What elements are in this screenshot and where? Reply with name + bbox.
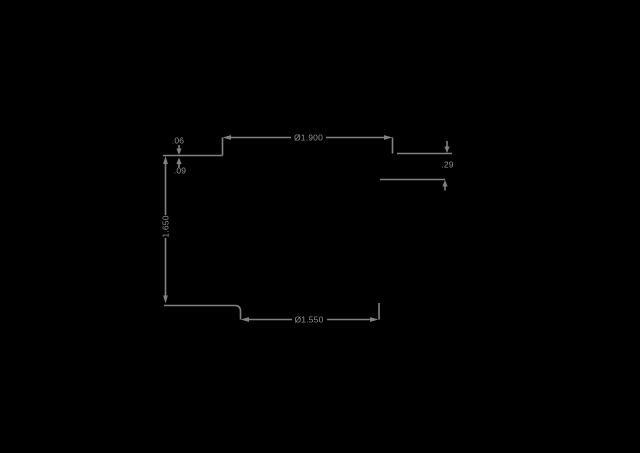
arrowhead-icon xyxy=(163,296,168,304)
dimension-left-height[interactable]: 1.650 xyxy=(161,156,171,304)
dimension-label[interactable]: .06 xyxy=(172,136,184,146)
dimension-label[interactable]: .29 xyxy=(441,160,453,170)
dimension-right-step[interactable]: .29 xyxy=(441,141,453,191)
arrowhead-icon xyxy=(444,147,449,154)
arrowhead-icon xyxy=(223,135,232,140)
arrowhead-icon xyxy=(370,317,379,322)
dimension-label[interactable]: Ø1.900 xyxy=(294,133,323,143)
dimension-label[interactable]: 1.650 xyxy=(161,215,171,237)
drawing-canvas[interactable]: Ø1.900 .06 .09 1.650 xyxy=(0,0,640,453)
dimension-left-step-upper[interactable]: .06 xyxy=(172,136,184,156)
arrowhead-icon xyxy=(384,135,393,140)
arrowhead-icon xyxy=(176,158,181,165)
arrowhead-icon xyxy=(176,149,181,156)
dimension-bottom[interactable]: Ø1.550 xyxy=(241,303,380,325)
dimension-label[interactable]: Ø1.550 xyxy=(294,315,323,325)
arrowhead-icon xyxy=(442,180,447,187)
dimension-label[interactable]: .09 xyxy=(174,166,186,176)
arrowhead-icon xyxy=(163,156,168,164)
extension-line-jogged xyxy=(164,306,241,320)
dimension-left-step-lower[interactable]: .09 xyxy=(174,158,186,176)
dimension-top[interactable]: Ø1.900 xyxy=(223,133,393,156)
